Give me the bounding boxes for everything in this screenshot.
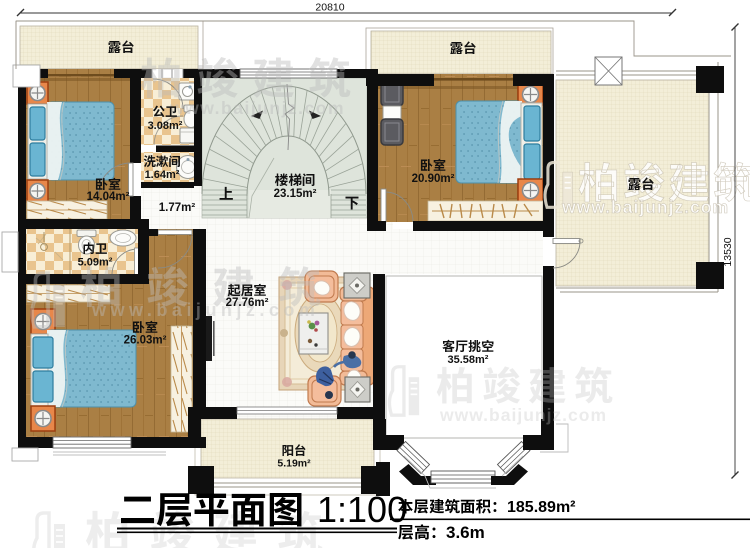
svg-text:www.baijunjz.com: www.baijunjz.com — [561, 194, 729, 219]
svg-text:20.90m²: 20.90m² — [412, 170, 455, 186]
svg-text:下: 下 — [345, 192, 360, 213]
svg-text:露台: 露台 — [450, 37, 477, 57]
svg-text:www.baijunjz.com: www.baijunjz.com — [91, 296, 319, 322]
svg-text:1.77m²: 1.77m² — [159, 199, 196, 215]
svg-text:上: 上 — [219, 183, 234, 204]
svg-text:20810: 20810 — [315, 0, 344, 15]
svg-text:www.baijunjz.com: www.baijunjz.com — [439, 402, 607, 427]
svg-text:5.09m²: 5.09m² — [78, 254, 113, 270]
svg-text:3.6m: 3.6m — [446, 518, 485, 543]
svg-text:5.19m²: 5.19m² — [277, 456, 311, 471]
svg-text:26.03m²: 26.03m² — [124, 332, 167, 348]
svg-text:185.89m²: 185.89m² — [507, 493, 576, 517]
svg-text:13530: 13530 — [720, 237, 735, 266]
svg-text:1:100: 1:100 — [317, 481, 407, 533]
svg-text:3.08m²: 3.08m² — [148, 117, 183, 133]
svg-text:27.76m²: 27.76m² — [226, 294, 269, 310]
svg-text:14.04m²: 14.04m² — [87, 188, 130, 204]
svg-text:层高：: 层高： — [398, 519, 446, 543]
svg-text:二层平面图: 二层平面图 — [119, 480, 304, 534]
svg-text:23.15m²: 23.15m² — [274, 185, 317, 201]
svg-text:www.baijunjz.com: www.baijunjz.com — [169, 95, 345, 120]
svg-text:本层建筑面积：: 本层建筑面积： — [398, 495, 507, 517]
svg-text:露台: 露台 — [108, 36, 135, 56]
svg-text:露台: 露台 — [628, 173, 656, 193]
svg-text:35.58m²: 35.58m² — [448, 351, 489, 367]
svg-text:1.64m²: 1.64m² — [145, 166, 180, 182]
